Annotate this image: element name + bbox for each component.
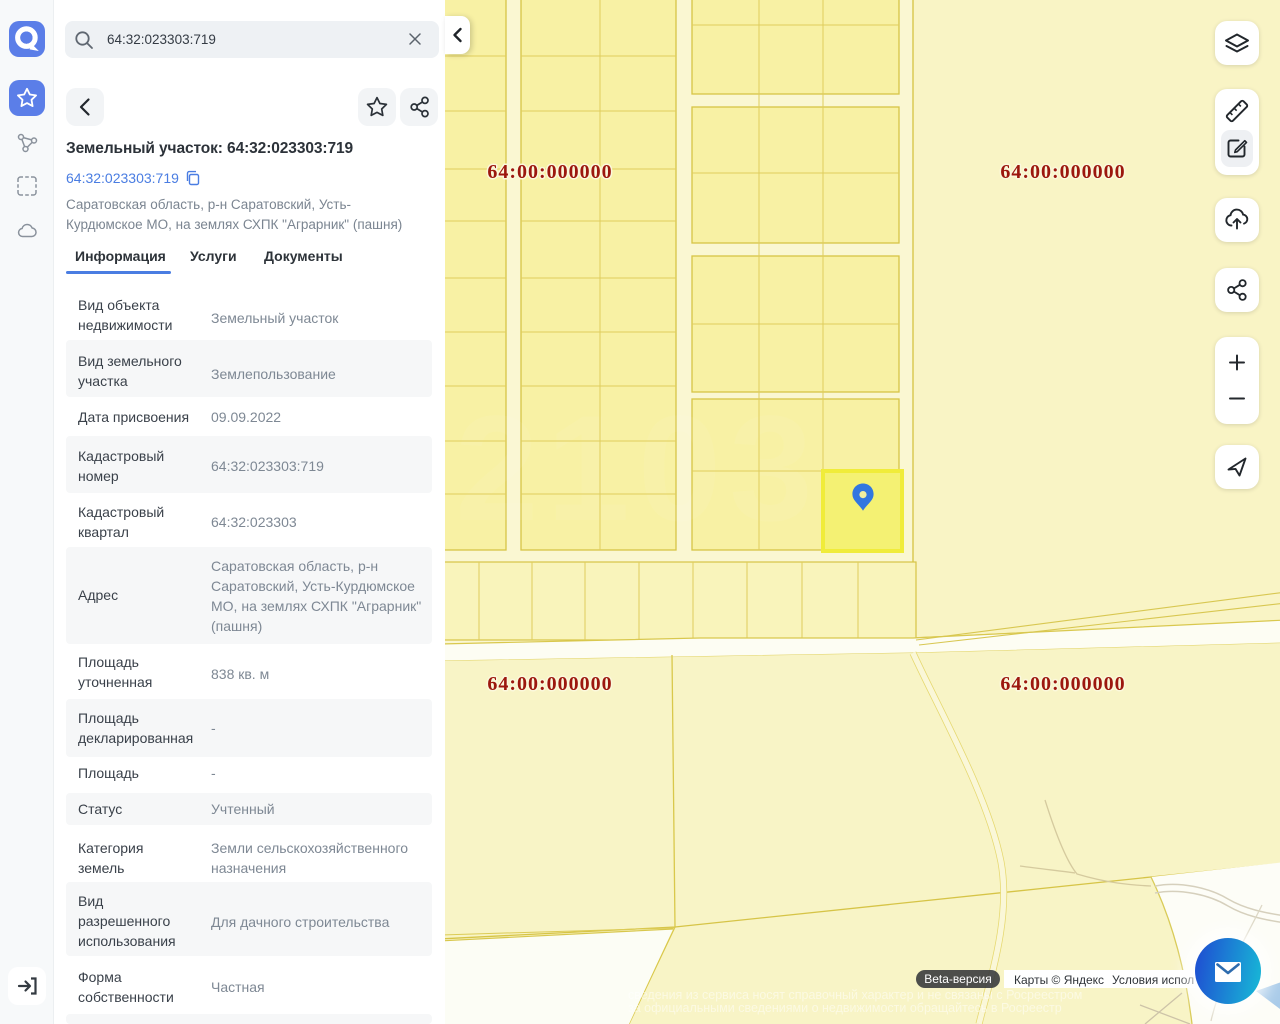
svg-text:64:00:000000: 64:00:000000: [1000, 673, 1125, 695]
svg-text:64:00:000000: 64:00:000000: [1000, 161, 1125, 183]
svg-text:2103: 2103: [455, 384, 821, 552]
svg-text:64:00:000000: 64:00:000000: [487, 161, 612, 183]
svg-text:64:00:000000: 64:00:000000: [487, 673, 612, 695]
